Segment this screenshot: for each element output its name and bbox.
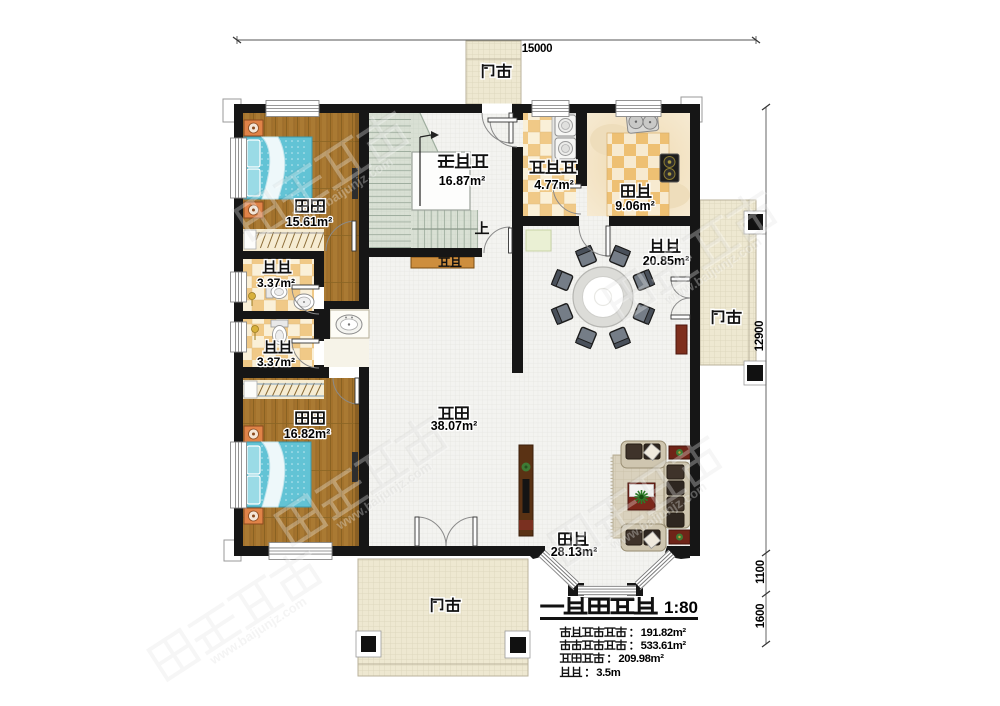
svg-text:：: ： (629, 640, 640, 652)
svg-text:191.82m²: 191.82m² (641, 627, 687, 639)
svg-text:15000: 15000 (522, 43, 552, 55)
svg-text:9.06m²: 9.06m² (615, 199, 655, 213)
svg-text:3.5m: 3.5m (596, 667, 621, 679)
svg-text:：: ： (584, 667, 595, 679)
svg-text:1600: 1600 (755, 604, 767, 628)
svg-text:16.87m²: 16.87m² (439, 174, 486, 188)
svg-text:12900: 12900 (754, 321, 766, 351)
svg-text:16.82m²: 16.82m² (284, 427, 331, 441)
svg-text:1100: 1100 (755, 560, 767, 584)
svg-text:533.61m²: 533.61m² (641, 640, 687, 652)
svg-text:3.37m²: 3.37m² (257, 355, 295, 369)
svg-text:：: ： (629, 627, 640, 639)
svg-text:：: ： (606, 653, 617, 665)
svg-text:209.98m²: 209.98m² (618, 653, 664, 665)
svg-text:4.77m²: 4.77m² (534, 178, 574, 192)
svg-text:1:80: 1:80 (664, 598, 698, 617)
svg-text:3.37m²: 3.37m² (257, 276, 295, 290)
